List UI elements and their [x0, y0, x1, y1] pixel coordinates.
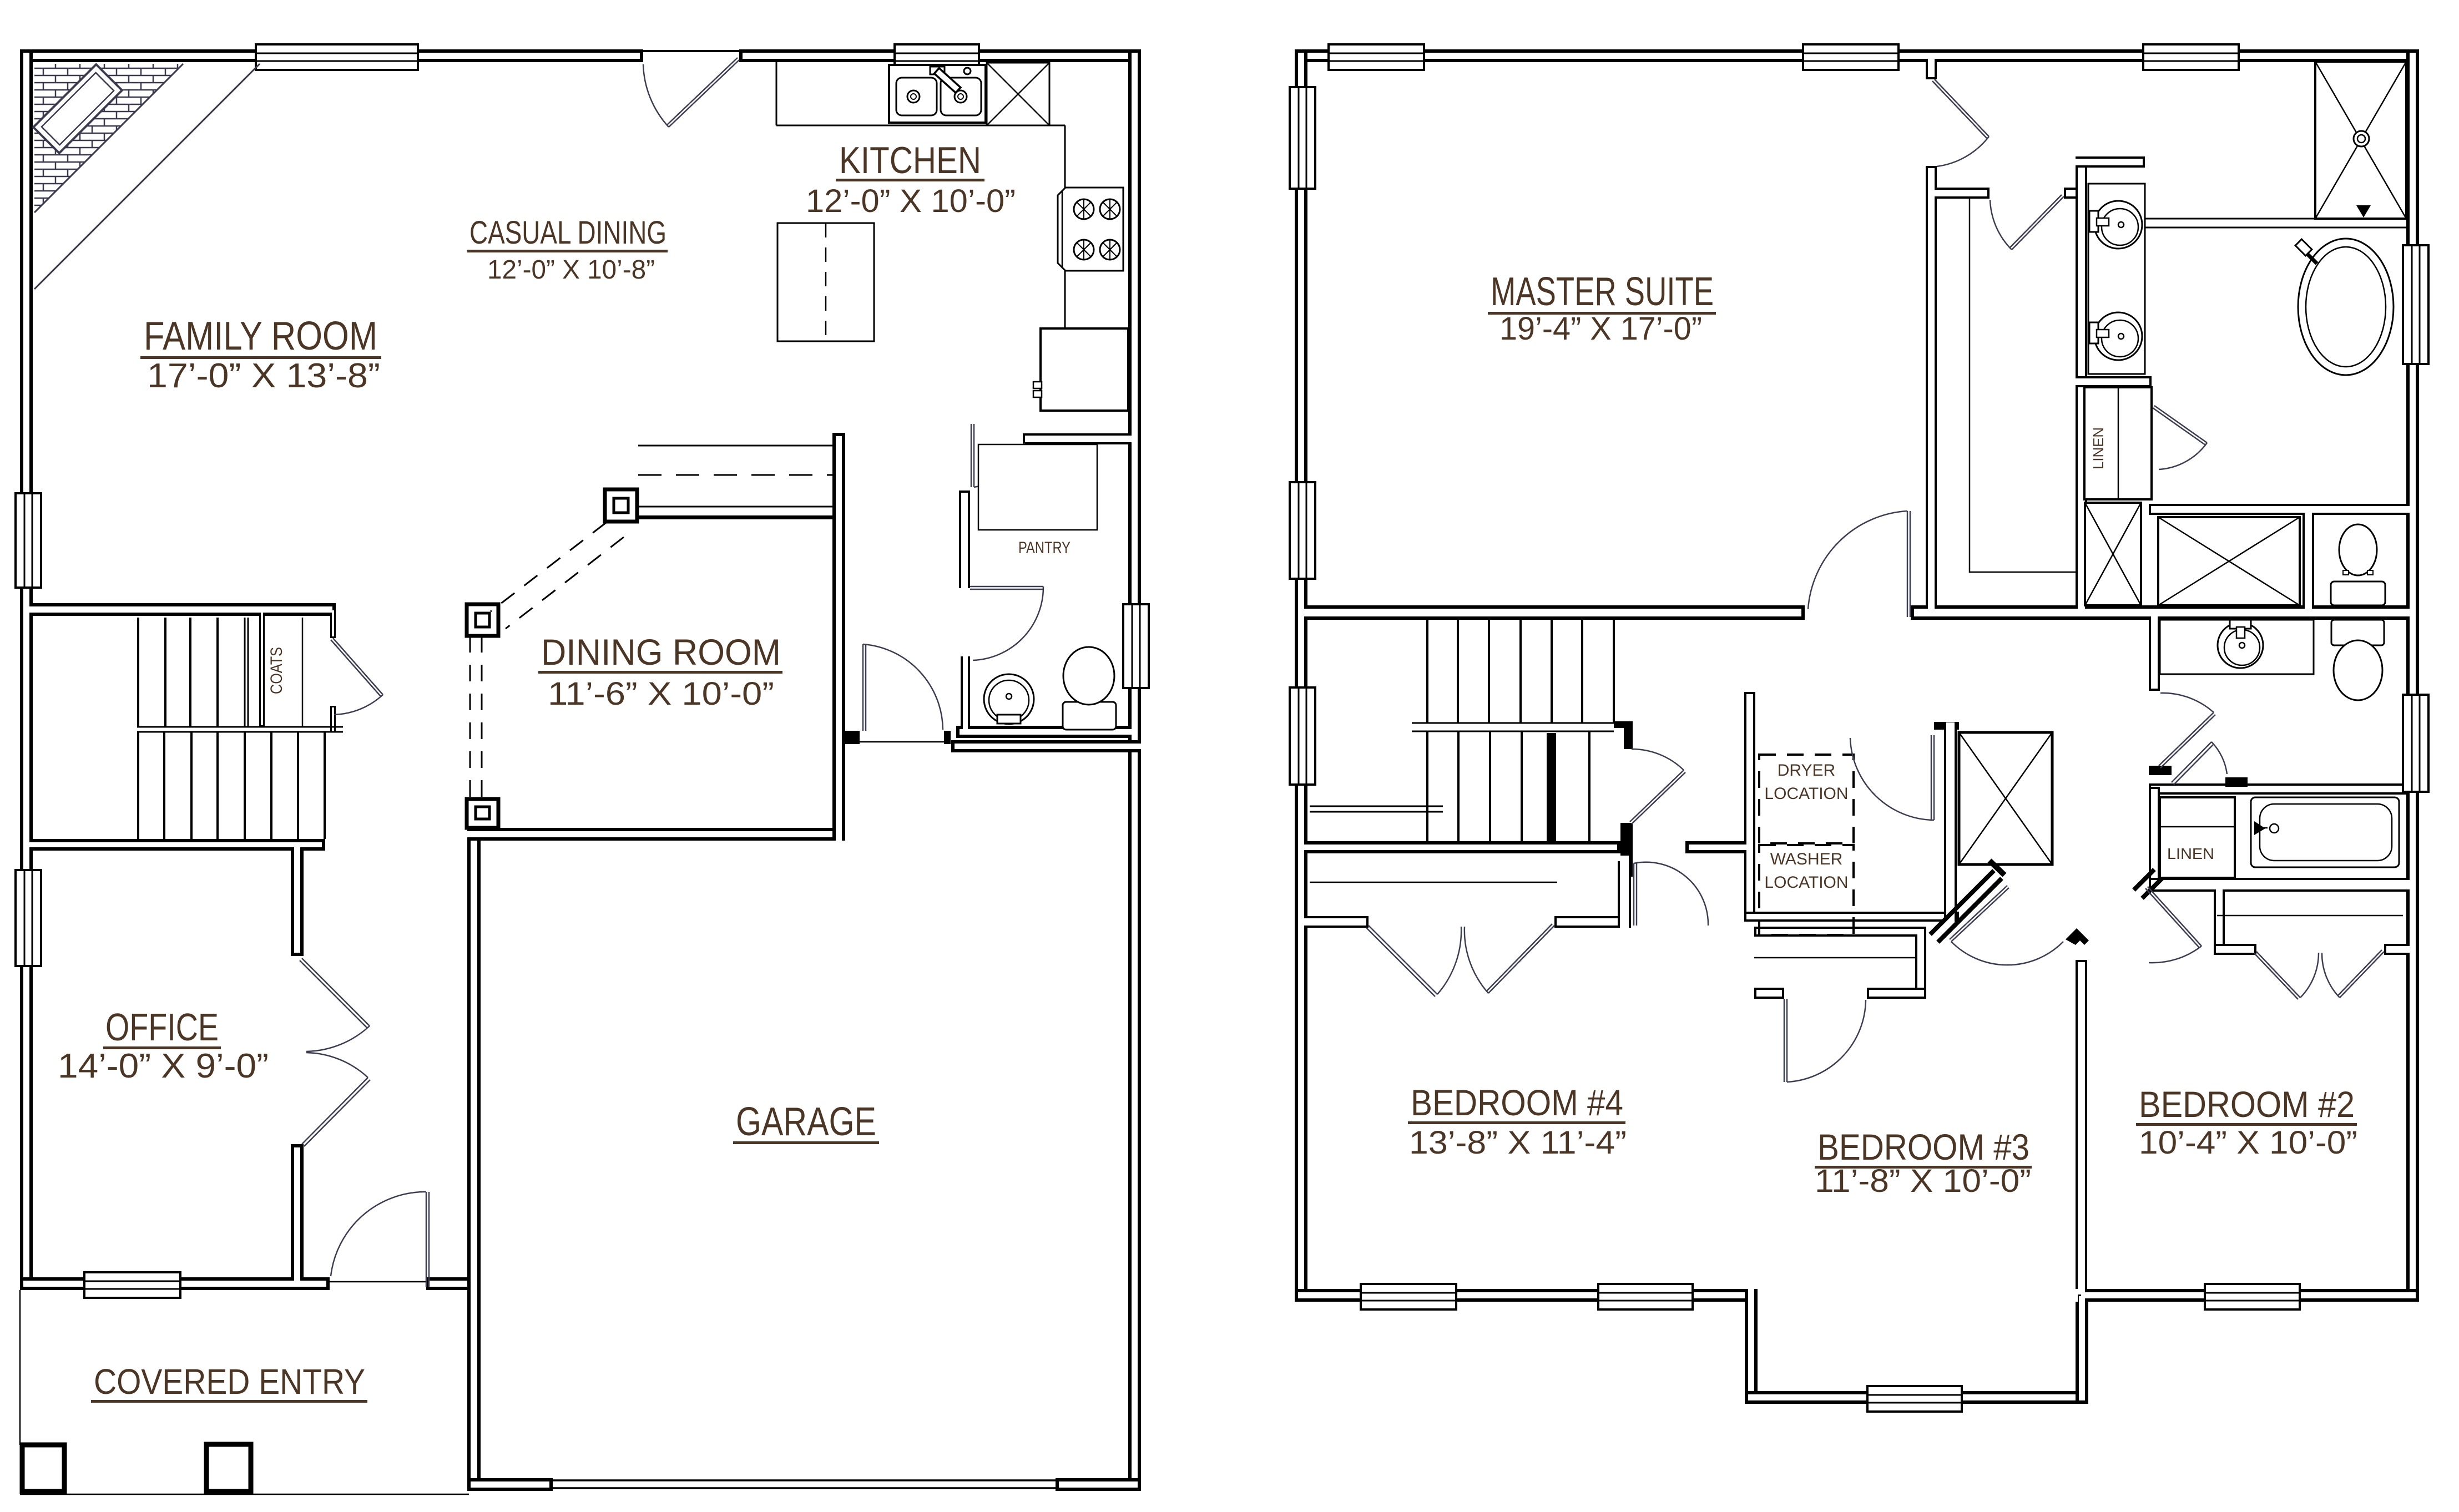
svg-text:KITCHEN: KITCHEN: [839, 139, 981, 181]
svg-text:FAMILY ROOM: FAMILY ROOM: [144, 314, 377, 358]
svg-text:DINING ROOM: DINING ROOM: [541, 631, 781, 672]
svg-text:BEDROOM #4: BEDROOM #4: [1411, 1082, 1623, 1123]
svg-text:BEDROOM #2: BEDROOM #2: [2139, 1084, 2355, 1125]
svg-text:LOCATION: LOCATION: [1764, 785, 1848, 803]
svg-text:PANTRY: PANTRY: [1018, 539, 1071, 557]
svg-text:11’-6” X 10’-0”: 11’-6” X 10’-0”: [548, 676, 774, 712]
svg-text:LINEN: LINEN: [2090, 427, 2107, 469]
svg-text:12’-0” X 10’-0”: 12’-0” X 10’-0”: [806, 183, 1016, 219]
svg-text:OFFICE: OFFICE: [105, 1005, 219, 1049]
svg-text:17’-0” X 13’-8”: 17’-0” X 13’-8”: [147, 357, 380, 395]
svg-text:GARAGE: GARAGE: [736, 1100, 876, 1144]
svg-text:12’-0” X 10’-8”: 12’-0” X 10’-8”: [487, 255, 655, 285]
svg-text:WASHER: WASHER: [1770, 850, 1843, 868]
svg-text:19’-4” X 17’-0”: 19’-4” X 17’-0”: [1499, 311, 1702, 347]
svg-text:COVERED ENTRY: COVERED ENTRY: [94, 1362, 365, 1402]
svg-text:CASUAL DINING: CASUAL DINING: [469, 215, 666, 251]
svg-text:COATS: COATS: [267, 647, 286, 694]
svg-text:11’-8” X 10’-0”: 11’-8” X 10’-0”: [1815, 1163, 2031, 1199]
svg-text:13’-8” X 11’-4”: 13’-8” X 11’-4”: [1409, 1125, 1627, 1161]
svg-text:MASTER SUITE: MASTER SUITE: [1491, 270, 1714, 314]
svg-text:10’-4” X 10’-0”: 10’-4” X 10’-0”: [2139, 1125, 2357, 1161]
svg-text:DRYER: DRYER: [1778, 761, 1835, 780]
svg-text:LOCATION: LOCATION: [1764, 873, 1848, 892]
svg-text:LINEN: LINEN: [2167, 845, 2214, 862]
svg-text:14’-0” X 9’-0”: 14’-0” X 9’-0”: [58, 1047, 269, 1085]
svg-text:BEDROOM #3: BEDROOM #3: [1817, 1126, 2029, 1167]
